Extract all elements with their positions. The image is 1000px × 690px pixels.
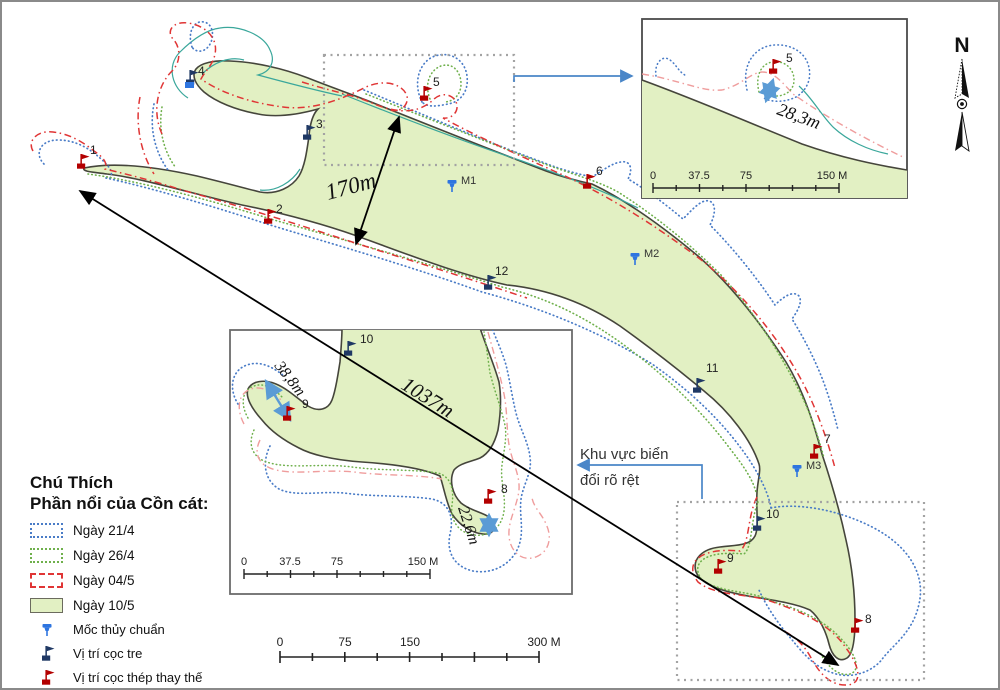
point-1-label: 1 — [90, 143, 97, 157]
main-scalebar — [280, 651, 539, 663]
legend-item-04-5: Ngày 04/5 — [30, 572, 260, 589]
point-7-label: 7 — [824, 432, 831, 446]
swatch-26-4 — [30, 548, 63, 563]
svg-text:75: 75 — [331, 556, 343, 568]
benchmark-square-4 — [185, 82, 194, 88]
map-canvas: 170m 1 2 3 4 5 6 7 8 9 10 11 12 M1 M2 M3 — [0, 0, 1000, 690]
svg-text:37.5: 37.5 — [279, 556, 300, 568]
svg-text:75: 75 — [740, 170, 752, 182]
steel-flag-icon — [30, 669, 63, 686]
point-11-label: 11 — [706, 361, 719, 375]
callout-line1: Khu vực biển — [580, 442, 700, 468]
legend-subtitle: Phần nổi của Cồn cát: — [30, 494, 260, 515]
legend-item-21-4: Ngày 21/4 — [30, 522, 260, 539]
point-12-label: 12 — [495, 264, 509, 278]
legend-item-bamboo-stake: Vị trí cọc tre — [30, 645, 260, 662]
inset-top-right: 5 28,3m 0 37.5 75 150 M — [642, 19, 907, 198]
point-3-label: 3 — [316, 117, 323, 131]
legend-title: Chú Thích — [30, 473, 260, 494]
point-10-label: 10 — [766, 507, 780, 521]
legend-item-10-5: Ngày 10/5 — [30, 597, 260, 614]
point-9-label: 9 — [727, 551, 734, 565]
benchmark-m2-label: M2 — [644, 248, 659, 260]
legend-item-benchmark: Mốc thủy chuẩn — [30, 621, 260, 638]
point-2-label: 2 — [276, 202, 283, 216]
point-4-label: 4 — [198, 64, 205, 78]
point-8-label: 8 — [865, 612, 872, 626]
legend-item-steel-stake: Vị trí cọc thép thay thế — [30, 669, 260, 686]
benchmark-pin-icon — [30, 622, 63, 638]
inset2-point-8-label: 8 — [501, 482, 508, 496]
north-arrow: N — [954, 34, 969, 151]
bamboo-flag-icon — [30, 645, 63, 662]
north-label: N — [954, 34, 969, 57]
svg-text:300 M: 300 M — [527, 635, 560, 649]
inset2-point-9-label: 9 — [302, 397, 309, 411]
inset2-point-10-label: 10 — [360, 332, 374, 346]
swatch-10-5 — [30, 598, 63, 613]
callout-line2: đổi rõ rệt — [580, 468, 700, 494]
svg-text:37.5: 37.5 — [688, 170, 709, 182]
main-scalebar-labels: 0 75 150 300 M — [277, 635, 561, 649]
legend: Chú Thích Phần nổi của Cồn cát: Ngày 21/… — [30, 473, 260, 686]
point-5-label: 5 — [433, 75, 440, 89]
inset-middle: 10 9 8 38,8m 22,6m 0 37.5 7 — [230, 328, 572, 594]
swatch-04-5 — [30, 573, 63, 588]
legend-item-26-4: Ngày 26/4 — [30, 547, 260, 564]
benchmark-m1-label: M1 — [461, 175, 476, 187]
svg-text:150 M: 150 M — [817, 170, 848, 182]
svg-text:0: 0 — [277, 635, 284, 649]
inset1-point-5-label: 5 — [786, 51, 793, 65]
connector-to-top-inset — [514, 76, 632, 82]
callout-changed-sea-area: Khu vực biển đổi rõ rệt — [580, 442, 700, 495]
swatch-21-4 — [30, 523, 63, 538]
svg-text:150 M: 150 M — [408, 556, 439, 568]
svg-text:150: 150 — [400, 635, 420, 649]
point-6-label: 6 — [596, 164, 603, 178]
svg-text:0: 0 — [650, 170, 656, 182]
benchmark-m3-label: M3 — [806, 460, 821, 472]
svg-text:75: 75 — [338, 635, 352, 649]
